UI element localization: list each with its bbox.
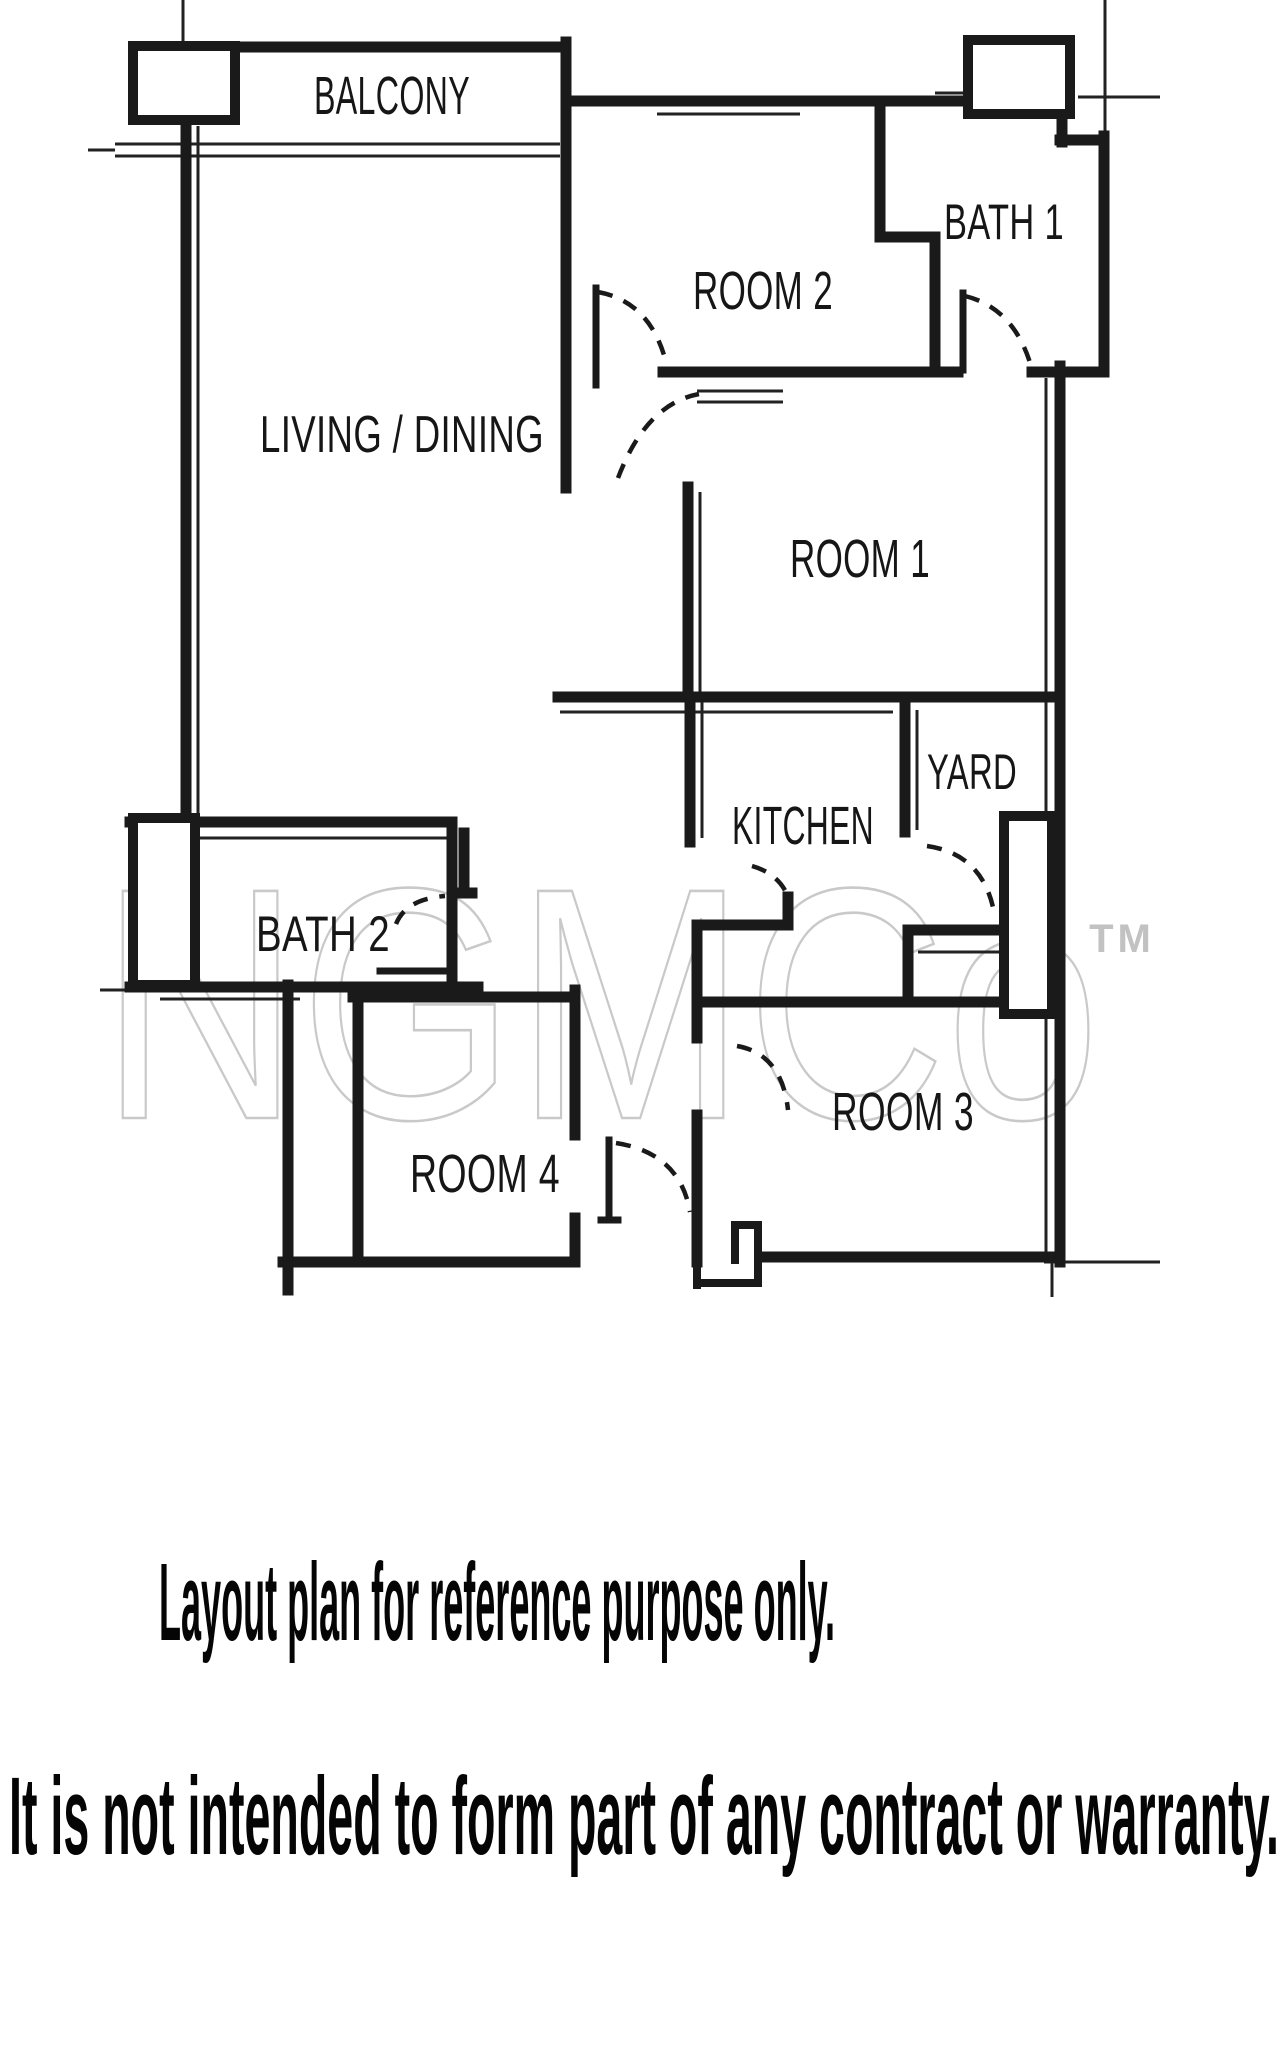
room-label-room-1: ROOM 1	[790, 529, 930, 589]
room-label-balcony: BALCONY	[314, 66, 470, 126]
disclaimer-line-1: Layout plan for reference purpose only.	[159, 1541, 835, 1664]
room-label-kitchen: KITCHEN	[732, 796, 874, 856]
floor-plan-drawing: NGMCo TM	[0, 0, 1286, 2048]
room-label-room-2: ROOM 2	[693, 261, 833, 321]
room-label-yard: YARD	[927, 744, 1017, 800]
disclaimer: Layout plan for reference purpose only. …	[9, 1541, 1279, 1878]
room-label-bath-2: BATH 2	[256, 906, 390, 962]
room-label-room-3: ROOM 3	[832, 1082, 974, 1142]
floor-plan-page: NGMCo TM	[0, 0, 1286, 2048]
watermark-tm: TM	[1089, 917, 1155, 961]
room-label-bath-1: BATH 1	[944, 194, 1064, 250]
room-label-room-4: ROOM 4	[410, 1144, 560, 1204]
room-label-living-dining: LIVING / DINING	[260, 406, 544, 464]
disclaimer-line-2: It is not intended to form part of any c…	[9, 1755, 1279, 1878]
